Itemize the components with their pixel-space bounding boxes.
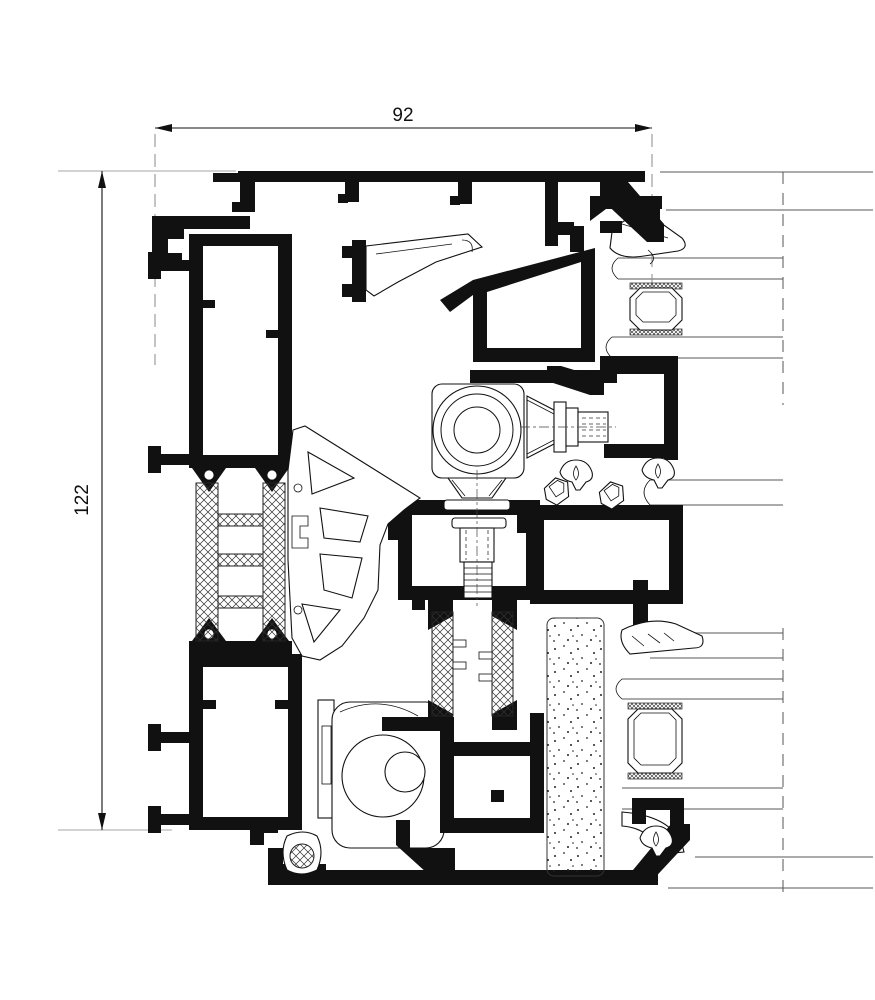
dimension-width-value: 92 xyxy=(392,105,413,126)
spacer-sealant xyxy=(628,703,682,709)
roller-wheel xyxy=(433,386,521,474)
polyamide-strut xyxy=(196,483,218,641)
glass-pane-line xyxy=(622,679,783,699)
thermal-break-left xyxy=(196,470,285,641)
glass-pane-line xyxy=(650,480,783,505)
insulation-panel xyxy=(547,618,604,876)
dimension-width: 92 xyxy=(155,105,652,132)
glazing-spacer xyxy=(630,288,682,330)
glass-pane-line xyxy=(618,258,783,279)
fixed-sash-chamber xyxy=(530,505,683,520)
glazing-spacer xyxy=(628,709,682,773)
polyamide-strut xyxy=(432,612,453,716)
arrowhead-down-icon xyxy=(98,813,106,830)
adjustment-screw-horizontal xyxy=(520,396,616,458)
glass-pane-line xyxy=(612,337,783,358)
glass-pane-line xyxy=(668,857,873,888)
dimension-height-value: 122 xyxy=(72,484,93,516)
polyamide-strut xyxy=(492,612,513,716)
thermal-break-sash xyxy=(432,612,513,716)
profile-cross-section-drawing: 92 122 xyxy=(0,0,875,1000)
gasket-bottom-glass xyxy=(621,621,703,654)
arrowhead-right-icon xyxy=(635,124,652,132)
arrowhead-left-icon xyxy=(155,124,172,132)
handle-lock-detail xyxy=(342,735,425,817)
top-track-rail xyxy=(238,171,645,182)
screw-channel xyxy=(290,844,314,868)
technical-drawing-canvas: 92 122 xyxy=(0,0,875,1000)
spacer-sealant xyxy=(628,773,682,779)
sill-gasket-left xyxy=(283,832,321,874)
arrowhead-up-icon xyxy=(98,171,106,188)
fixing-screw-vertical xyxy=(444,470,510,606)
dimension-height: 122 xyxy=(72,171,106,830)
roller-assembly xyxy=(432,384,524,478)
polyamide-strut xyxy=(263,483,285,641)
sash-top-chamber xyxy=(473,248,595,362)
